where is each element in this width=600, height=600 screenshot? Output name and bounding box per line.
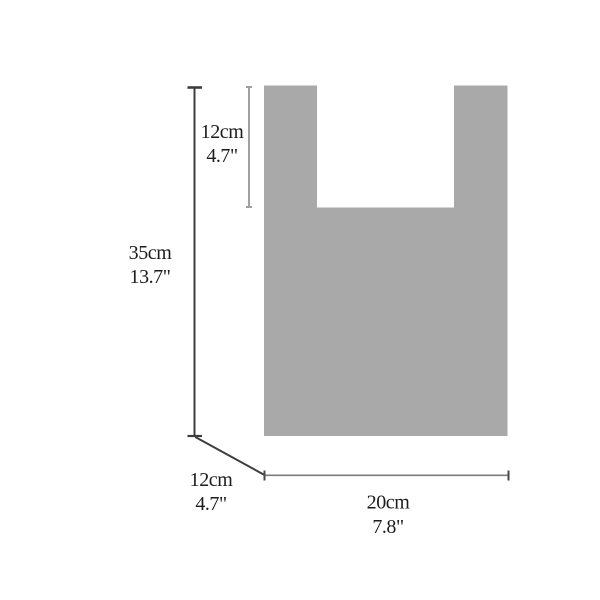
svg-text:12cm: 12cm bbox=[201, 121, 245, 143]
svg-text:4.7": 4.7" bbox=[206, 145, 237, 167]
svg-text:4.7": 4.7" bbox=[195, 493, 226, 515]
svg-text:7.8": 7.8" bbox=[372, 516, 403, 538]
svg-text:13.7": 13.7" bbox=[130, 266, 171, 288]
svg-text:35cm: 35cm bbox=[129, 242, 173, 264]
svg-text:20cm: 20cm bbox=[367, 492, 411, 514]
svg-text:12cm: 12cm bbox=[190, 469, 234, 491]
